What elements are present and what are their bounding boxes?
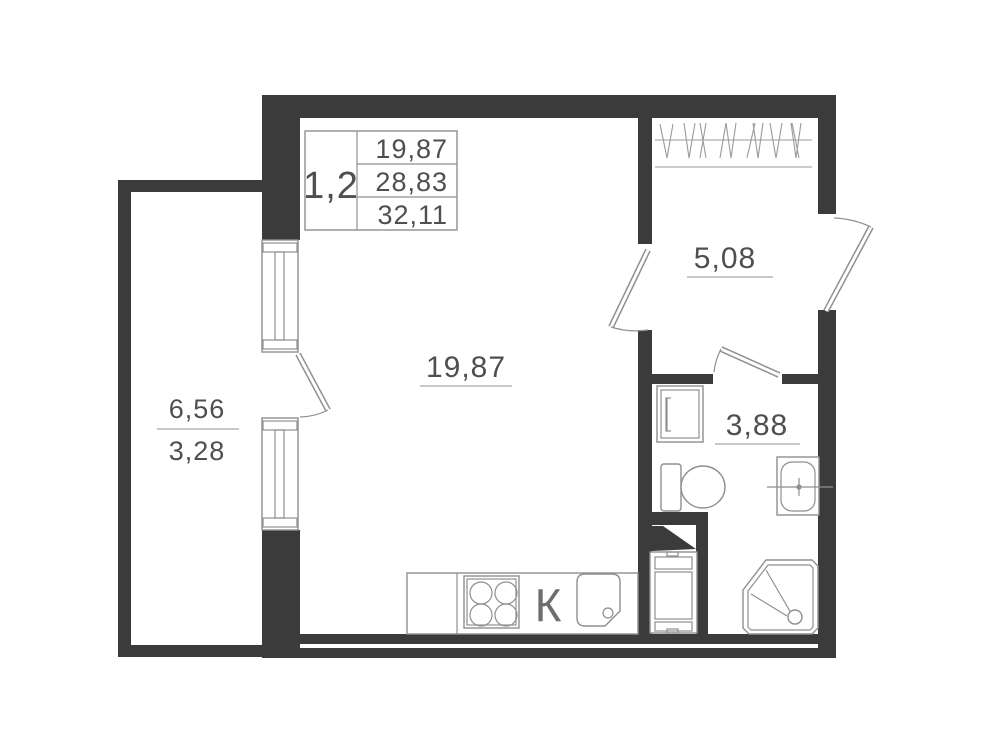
wall-bottom-facade-line (300, 644, 818, 648)
wall-right-lower (818, 310, 836, 658)
unit-area-total: 32,11 (377, 200, 448, 230)
kitchen-fixtures: К (407, 573, 638, 634)
kitchen-sink-icon (577, 574, 620, 626)
washer-column-icon (650, 552, 697, 633)
wall-bath-top-right (782, 374, 818, 384)
balcony-wall-bottom (118, 645, 262, 657)
bathroom-area: 3,88 (726, 409, 788, 442)
floor-plan-canvas: К 1,2 19,87 28,83 32,11 19,87 5,08 3,88 … (0, 0, 1004, 753)
floor-plan: К 1,2 19,87 28,83 32,11 19,87 5,08 3,88 … (0, 0, 1004, 753)
living-room-area: 19,87 (426, 351, 506, 384)
balcony-wall-left (118, 180, 131, 657)
windows (262, 240, 298, 530)
balcony-area-fraction: 6,56 3,28 (157, 394, 239, 466)
unit-area-no-balcony: 28,83 (375, 167, 448, 197)
faucet-mark (796, 484, 801, 489)
vent-duct-icon (652, 526, 696, 551)
unit-area-living: 19,87 (375, 134, 448, 164)
unit-info-table: 1,2 19,87 28,83 32,11 (303, 131, 457, 230)
wall-hall-upper (638, 112, 652, 248)
wall-niche-right (696, 525, 708, 634)
toilet-icon (661, 464, 725, 511)
stove-icon (464, 576, 519, 628)
balcony-door (298, 354, 328, 417)
wall-bath-top-left (652, 374, 713, 384)
bathroom-door (714, 349, 779, 375)
wall-right-upper (818, 112, 836, 218)
shower-tray-icon (743, 560, 818, 634)
washing-machine-icon (657, 386, 703, 442)
window-lower (262, 418, 298, 530)
balcony-wall-top (118, 180, 265, 192)
balcony-area-counted: 3,28 (169, 436, 226, 466)
entry-opening-sill (818, 214, 836, 218)
balcony-area-total: 6,56 (169, 394, 226, 424)
shower-drain (788, 610, 802, 624)
hallway-door (611, 250, 648, 331)
wall-top (262, 95, 836, 118)
window-upper (262, 240, 298, 352)
hall-door-sill (638, 244, 652, 248)
wall-left-upper (262, 95, 300, 240)
entrance-door (826, 218, 871, 311)
wardrobe-hatch (655, 123, 812, 167)
duct-niche (650, 526, 697, 633)
doors (298, 218, 871, 417)
hallway-area: 5,08 (694, 242, 756, 275)
wall-niche-top (652, 512, 708, 525)
unit-number: 1,2 (303, 165, 359, 207)
kitchen-label: К (535, 579, 562, 631)
